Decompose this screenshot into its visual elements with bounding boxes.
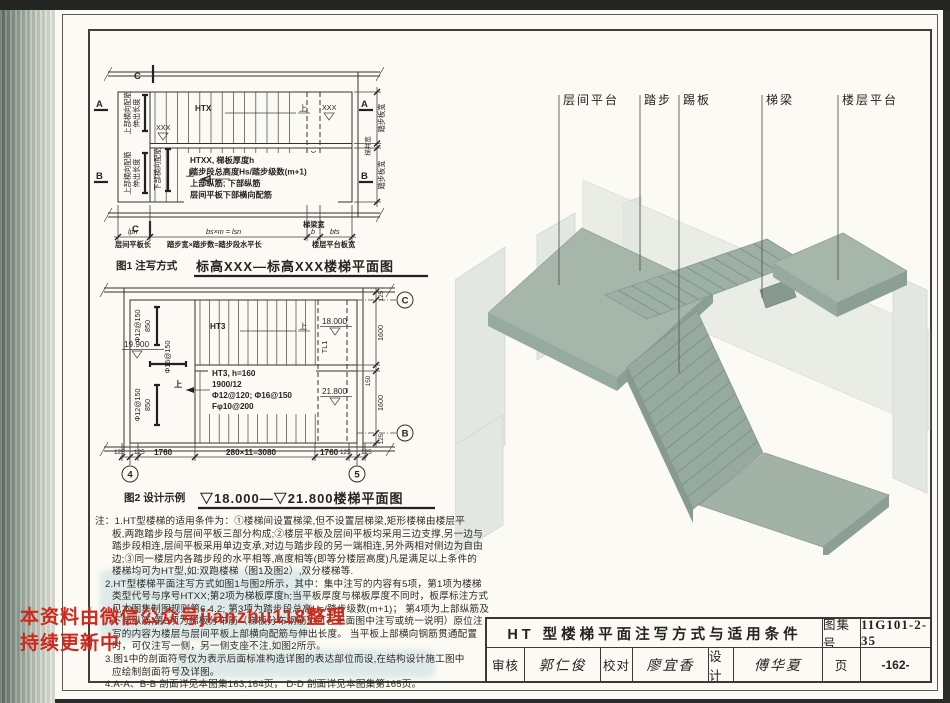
grid-b-label: B <box>402 429 409 440</box>
fig1-left-bottom-extend-label: 伸出长度 <box>132 159 141 188</box>
fig1-bottom-transverse-label: 下部横向配筋 <box>153 147 162 190</box>
red-watermark: 本资料由微信公众号jianzhu118整理 持续更新中 <box>20 605 346 657</box>
notes-block: 注：1.HT型楼梯的适用条件为：①楼梯间设置梯梁,但不设置层梯梁,矩形楼梯由楼层… <box>95 516 491 692</box>
fig1-beam-width-label: 梯梁宽 <box>303 220 325 229</box>
rebar-bar <box>154 307 160 345</box>
fig2-dim-125a: 125 <box>114 449 125 456</box>
fig2-rebar-bottom-length: 850 <box>143 399 152 411</box>
fig2-beam-tag: TL1 <box>320 341 329 353</box>
note-line: 踏步段相连,层间平板采用单边支承,对边与踏步段的另一端相连,另外两相对侧边为自由 <box>95 541 491 554</box>
label-intermediate-landing: 层间平台 <box>563 92 619 107</box>
page-label: 页 <box>822 647 860 681</box>
fig2-dim-1760R: 1760 <box>320 448 339 457</box>
fig1-top-wall <box>108 72 380 76</box>
fig2-caption-label: 图2 设计示例 <box>124 491 185 504</box>
fig1-right-width-bottom: 踏步板宽 <box>377 161 386 190</box>
fig1-bottom-wall <box>108 213 380 217</box>
fig2-elev-bottom: 21.800 <box>322 387 347 396</box>
break-mark <box>104 208 384 222</box>
atlas-no-value: 11G101-2-35 <box>860 619 930 647</box>
title-block: HT 型楼梯平面注写方式与适用条件 图集号 11G101-2-35 审核 郭仁俊… <box>485 617 932 683</box>
fig2-note-4: Fφ10@200 <box>212 402 254 411</box>
fig1-left-top-bar-label: 上部横向配筋 <box>123 91 132 134</box>
fig1-note-3: 上部纵筋; 下部纵筋 <box>190 178 261 188</box>
section-b-right: B <box>361 171 368 182</box>
fig1-floor-width-label: 楼层平台板宽 <box>312 240 356 249</box>
fig1-caption-label: 图1 注写方式 <box>116 259 178 272</box>
label-tread: 踏步 <box>644 93 672 107</box>
designer-label: 设计 <box>708 647 733 681</box>
fig1-upper-treads <box>155 92 289 144</box>
fig1-left-top-extend-label: 伸出长度 <box>132 99 141 128</box>
note-line: 4.A-A、B-B 剖面详见本图集163,164页， D-D 剖面详见本图集第1… <box>95 679 491 692</box>
elev-mark <box>122 350 164 359</box>
rebar-bar <box>142 95 148 131</box>
sheet-title: HT 型楼梯平面注写方式与适用条件 <box>487 619 822 647</box>
fig1-note-1: HTXX, 梯板厚度h <box>190 155 254 165</box>
fig1-sym-floor: bts <box>330 227 340 236</box>
section-a-left: A <box>96 99 103 110</box>
fig2-rdim-1600t: 1600 <box>376 325 385 341</box>
fig2-note-1: HT3, h=160 <box>212 369 256 378</box>
fig1-left-bottom-bar-label: 上部横向配筋 <box>123 151 132 194</box>
fig1-notation-plan: C HTX 上 XXX XXX XXX TLX 上 HTXX, 梯板厚度h 踏步… <box>90 45 485 297</box>
reviewer-name: 郭仁俊 <box>524 647 600 681</box>
fig2-stair-code: HT3 <box>210 322 226 331</box>
scan-top-edge <box>0 0 950 10</box>
fig2-top-wall <box>104 288 395 292</box>
note-line: 应绘制剖面符号及详图。 <box>95 667 491 680</box>
book-spine-edge <box>0 0 55 703</box>
fig2-dim-125b: 125 <box>134 449 145 456</box>
label-stair-beam: 梯梁 <box>766 92 794 107</box>
grid-5-label: 5 <box>354 470 360 481</box>
reviewer-label: 审核 <box>487 647 524 681</box>
fig2-upper-treads <box>200 300 315 365</box>
fig1-elev-mid: XXX <box>156 123 171 132</box>
watermark-line1: 本资料由微信公众号jianzhu118整理 <box>20 605 346 631</box>
fig2-rebar-top-length: 850 <box>143 320 152 332</box>
section-c-top: C <box>134 71 141 82</box>
fig1-caption-title: 标高XXX—标高XXX楼梯平面图 <box>195 259 394 274</box>
note-line: 板,两跑踏步段与层间平板三部分构成;②楼层平板及层间平板均采用三边支撑,另一边与 <box>95 529 491 542</box>
fig1-sym-steps: bs×m = lsn <box>206 227 241 236</box>
page-number: -162- <box>860 647 930 681</box>
note-line: 注：1.HT型楼梯的适用条件为：①楼梯间设置梯梁,但不设置层梯梁,矩形楼梯由楼层… <box>95 516 491 529</box>
fig2-rdim-1600b: 1600 <box>376 395 385 411</box>
note-line: 边;③同一楼层内各踏步段的水平相等,高度相等(即等分楼层高度)凡是满足以上条件的 <box>95 554 491 567</box>
rebar-bar <box>142 153 148 193</box>
fig1-right-width-top: 踏步板宽 <box>377 104 386 133</box>
fig1-sym-platform: lpn <box>128 227 138 236</box>
fig2-rdim-125b: 125 <box>378 433 385 444</box>
iso-stair-view: 层间平台 踏步 踢板 梯梁 楼层平台 <box>455 85 935 555</box>
fig2-elev-top: 18.000 <box>322 317 347 326</box>
fig2-dim-3080: 280×11=3080 <box>226 448 277 457</box>
fig2-rebar-top-spec: Φ12@150 <box>133 309 142 342</box>
fig2-note-2: 1900/12 <box>212 380 242 389</box>
fig2-rdim-150: 150 <box>365 375 372 386</box>
fig2-right-dim-chain <box>357 288 380 447</box>
grid-4-label: 4 <box>127 470 133 481</box>
break-mark <box>104 67 384 81</box>
fig1-right-width-mid: 梯井宽 <box>363 136 372 156</box>
checker-name: 廖宜香 <box>632 647 708 681</box>
section-a-right: A <box>361 99 368 110</box>
fig1-elev-top: XXX <box>322 103 337 112</box>
rebar-bar <box>154 385 160 425</box>
section-b-left: B <box>96 171 103 182</box>
watermark-line2: 持续更新中 <box>20 631 346 657</box>
fig2-dim-125c: 125 <box>340 449 351 456</box>
elev-triangle <box>324 113 334 120</box>
note-line: 2.HT型楼梯平面注写方式如图1与图2所示，其中：集中注写的内容有5项，第1项为… <box>95 579 491 592</box>
fig1-steps-length-label: 踏步宽×踏步数=踏步段水平长 <box>167 240 262 249</box>
note-line: 楼梯均可为HT型,如:双跑楼梯（图1及图2）,双分楼梯等. <box>95 566 491 579</box>
document-page: C HTX 上 XXX XXX XXX TLX 上 HTXX, 梯板厚度h 踏步… <box>55 10 943 699</box>
grid-c-label: C <box>402 296 409 307</box>
fig1-platform-length-label: 层间平板长 <box>115 240 152 249</box>
fig2-rdim-125t: 125 <box>378 290 385 301</box>
fig2-rebar-bottom-spec: Φ12@150 <box>133 388 142 421</box>
fig2-dim-1760L: 1760 <box>154 448 173 457</box>
fig2-rebar-mid-spec: Φ16@150 <box>163 340 172 373</box>
fig2-example-plan: C B HT3 上 18.000 21.800 19.900 TL1 上 HT3… <box>90 283 485 521</box>
fig1-note-4: 层间平板下部横向配筋 <box>190 190 272 200</box>
label-riser: 踢板 <box>683 93 711 107</box>
fig2-up-label-top: 上 <box>299 322 307 331</box>
fig2-note-3: Φ12@120; Φ16@150 <box>212 391 292 400</box>
fig1-stair-code: HTX <box>195 104 212 113</box>
break-mark <box>100 283 394 297</box>
fig2-up-label-bottom: 上 <box>174 379 182 389</box>
label-floor-landing: 楼层平台 <box>842 92 898 107</box>
fig2-caption-title: ▽18.000—▽21.800楼梯平面图 <box>199 491 404 506</box>
fig1-stairwell-band <box>150 144 352 149</box>
checker-label: 校对 <box>600 647 632 681</box>
fig1-note-2: 踏步段总高度Hs/踏步级数(m+1) <box>190 167 307 177</box>
note-line: 类型代号与序号HTXX;第2项为梯板厚度h;当平板厚度与梯板厚度不同时，板厚标注… <box>95 591 491 604</box>
leader-arrow <box>186 387 194 393</box>
fig2-dim-125d: 125 <box>361 449 372 456</box>
atlas-no-label: 图集号 <box>822 619 860 647</box>
designer-name: 傅华夏 <box>733 647 822 681</box>
fig1-up-label-top: 上 <box>299 104 307 113</box>
